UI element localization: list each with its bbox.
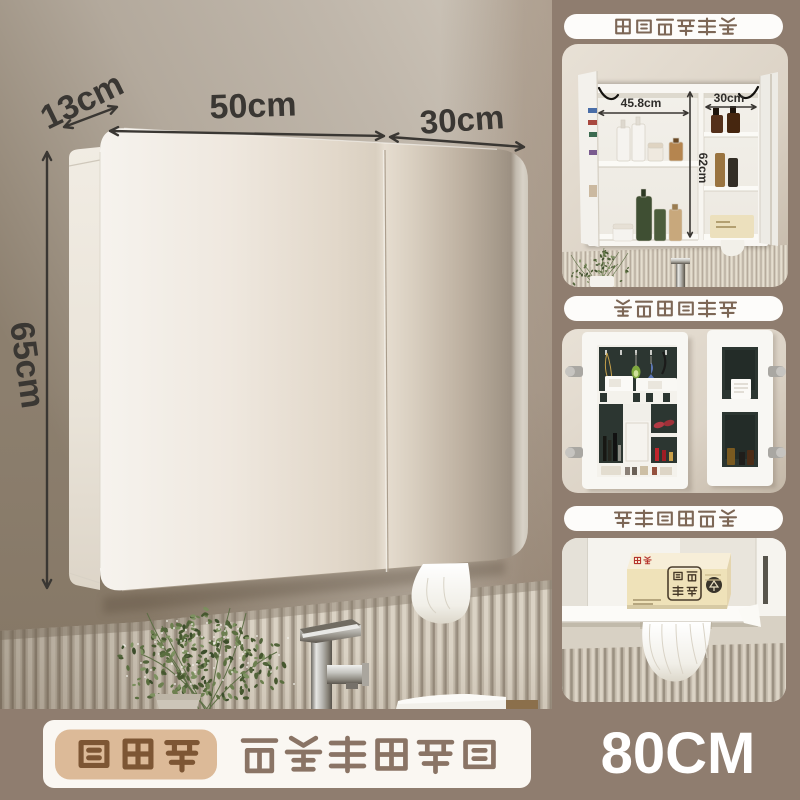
svg-text:50cm: 50cm xyxy=(209,85,297,126)
svg-text:80CM: 80CM xyxy=(601,721,756,786)
svg-text:30cm: 30cm xyxy=(419,98,506,141)
svg-text:62cm: 62cm xyxy=(696,153,710,184)
svg-text:45.8cm: 45.8cm xyxy=(621,96,662,110)
svg-text:30cm: 30cm xyxy=(714,91,745,105)
